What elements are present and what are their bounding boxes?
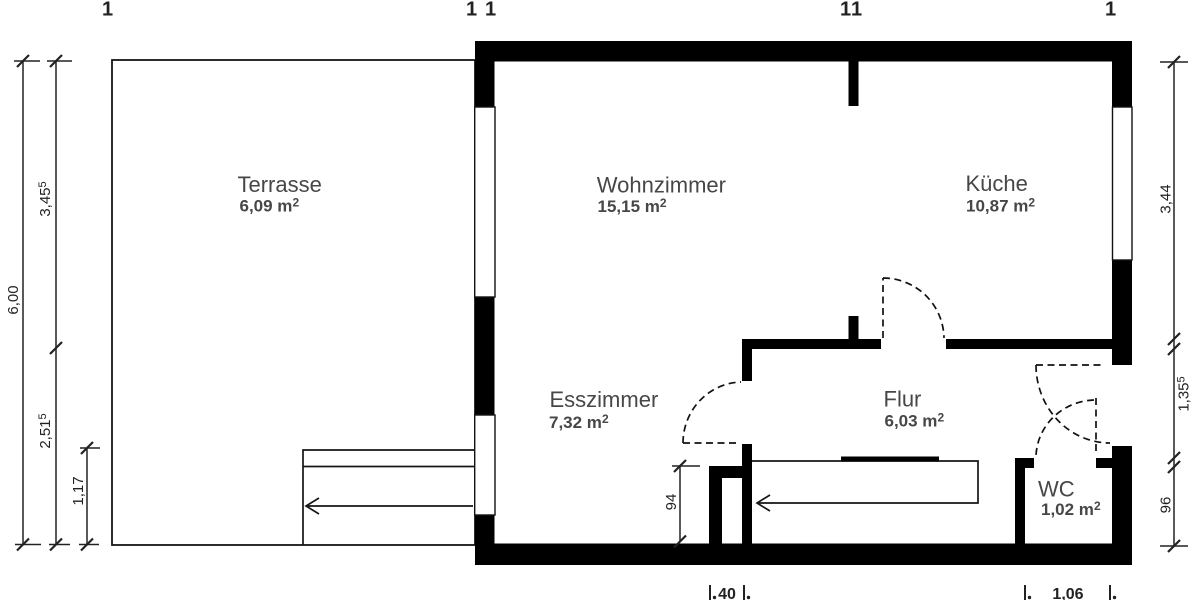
svg-text:6,03 m2: 6,03 m2	[885, 411, 945, 431]
svg-text:94: 94	[663, 494, 680, 511]
svg-text:96: 96	[1158, 497, 1175, 514]
svg-text:15,15 m2: 15,15 m2	[598, 196, 667, 216]
svg-text:WC: WC	[1038, 477, 1075, 502]
svg-text:1,17: 1,17	[70, 476, 87, 505]
svg-text:7,32 m2: 7,32 m2	[549, 412, 609, 432]
svg-text:Esszimmer: Esszimmer	[550, 387, 659, 412]
svg-text:1: 1	[851, 0, 862, 21]
svg-text:1: 1	[466, 0, 477, 21]
svg-text:6,00: 6,00	[5, 285, 22, 314]
svg-text:Terrasse: Terrasse	[238, 172, 322, 197]
svg-text:Küche: Küche	[966, 171, 1028, 196]
svg-text:3,44: 3,44	[1158, 184, 1175, 213]
svg-text:10,87 m2: 10,87 m2	[966, 196, 1035, 216]
svg-text:6,09 m2: 6,09 m2	[240, 195, 300, 215]
svg-text:1: 1	[1105, 0, 1116, 21]
svg-text:1: 1	[840, 0, 851, 21]
svg-text:1: 1	[102, 0, 113, 21]
svg-text:Wohnzimmer: Wohnzimmer	[597, 173, 726, 198]
svg-text:40: 40	[718, 586, 736, 600]
svg-text:1,06: 1,06	[1052, 586, 1083, 600]
svg-text:1,02 m2: 1,02 m2	[1041, 499, 1101, 519]
svg-text:Flur: Flur	[884, 387, 922, 412]
svg-text:1: 1	[485, 0, 496, 21]
